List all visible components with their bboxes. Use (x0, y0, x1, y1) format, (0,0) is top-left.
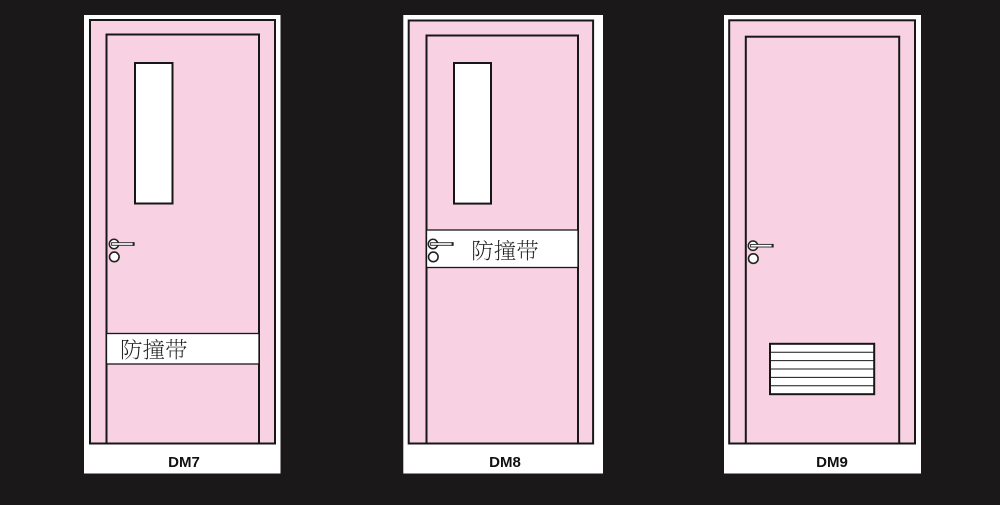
svg-text:DM8: DM8 (489, 454, 521, 471)
svg-text:DM9: DM9 (816, 454, 848, 471)
svg-text:DM7: DM7 (168, 454, 200, 471)
